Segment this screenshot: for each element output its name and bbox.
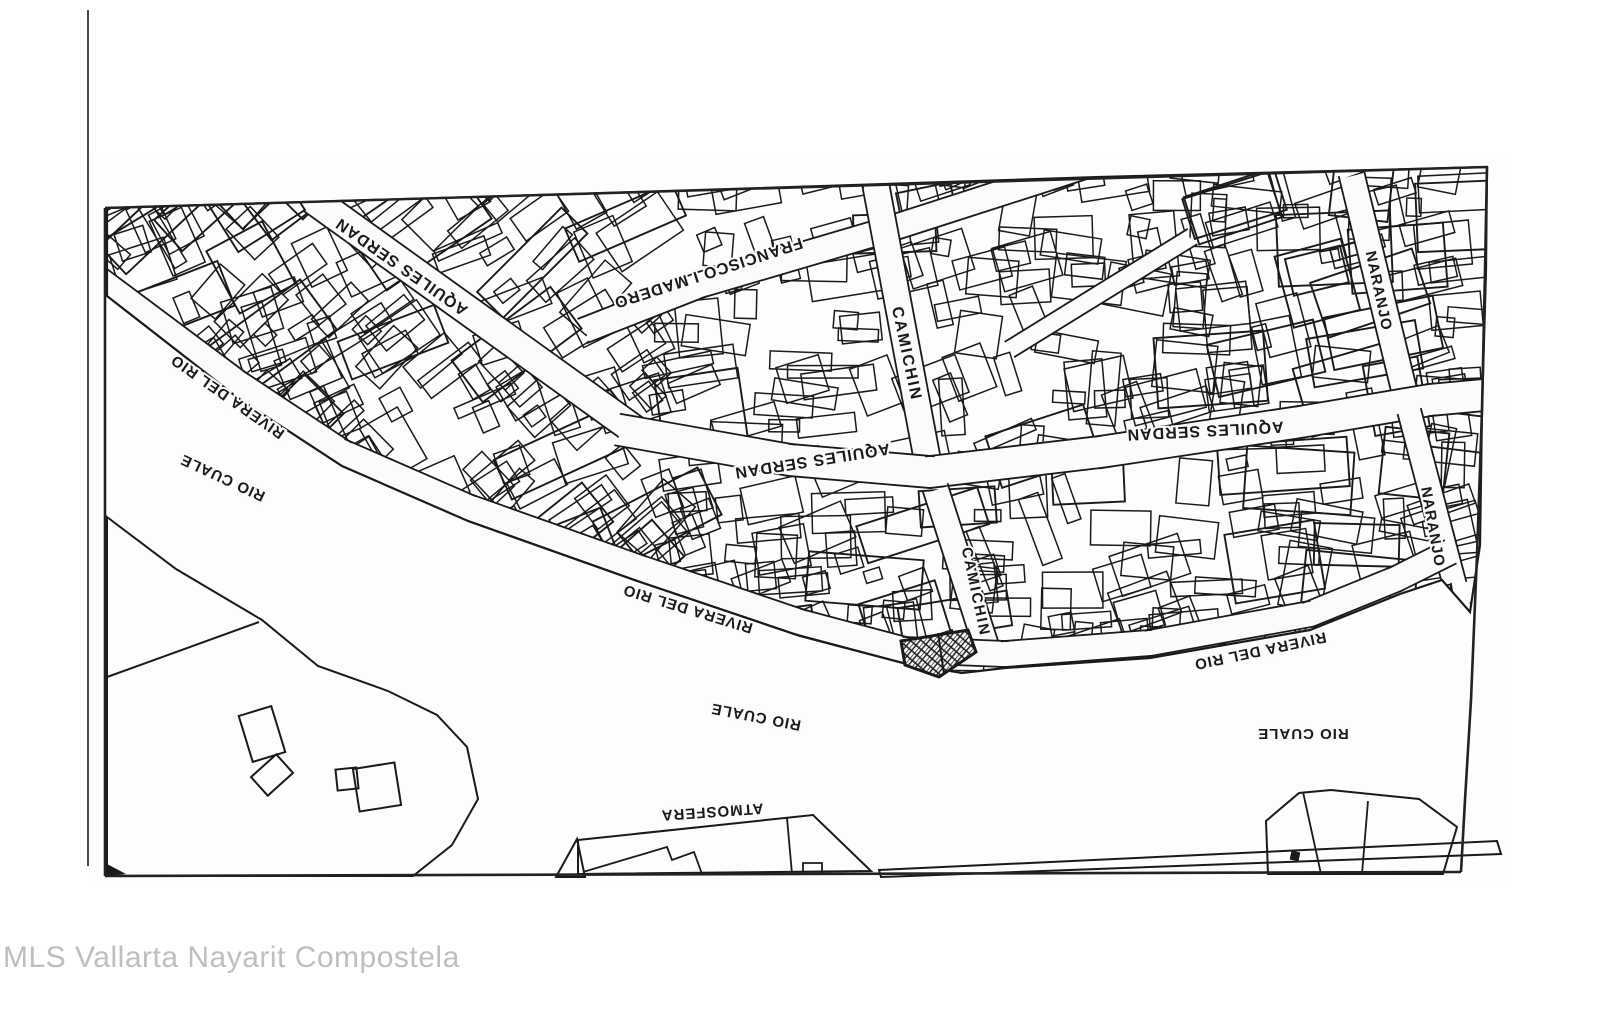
- map-canvas: AQUILES SERDANFRANCISCO I MADEROCAMICHIN…: [0, 0, 1600, 1025]
- bottom-right-mark: [1290, 851, 1301, 862]
- watermark-text: MLS Vallarta Nayarit Compostela: [3, 941, 460, 975]
- scanned-map-page: AQUILES SERDANFRANCISCO I MADEROCAMICHIN…: [0, 0, 1600, 1025]
- street-label-rio-cuale-east: RIO CUALE: [1257, 725, 1349, 742]
